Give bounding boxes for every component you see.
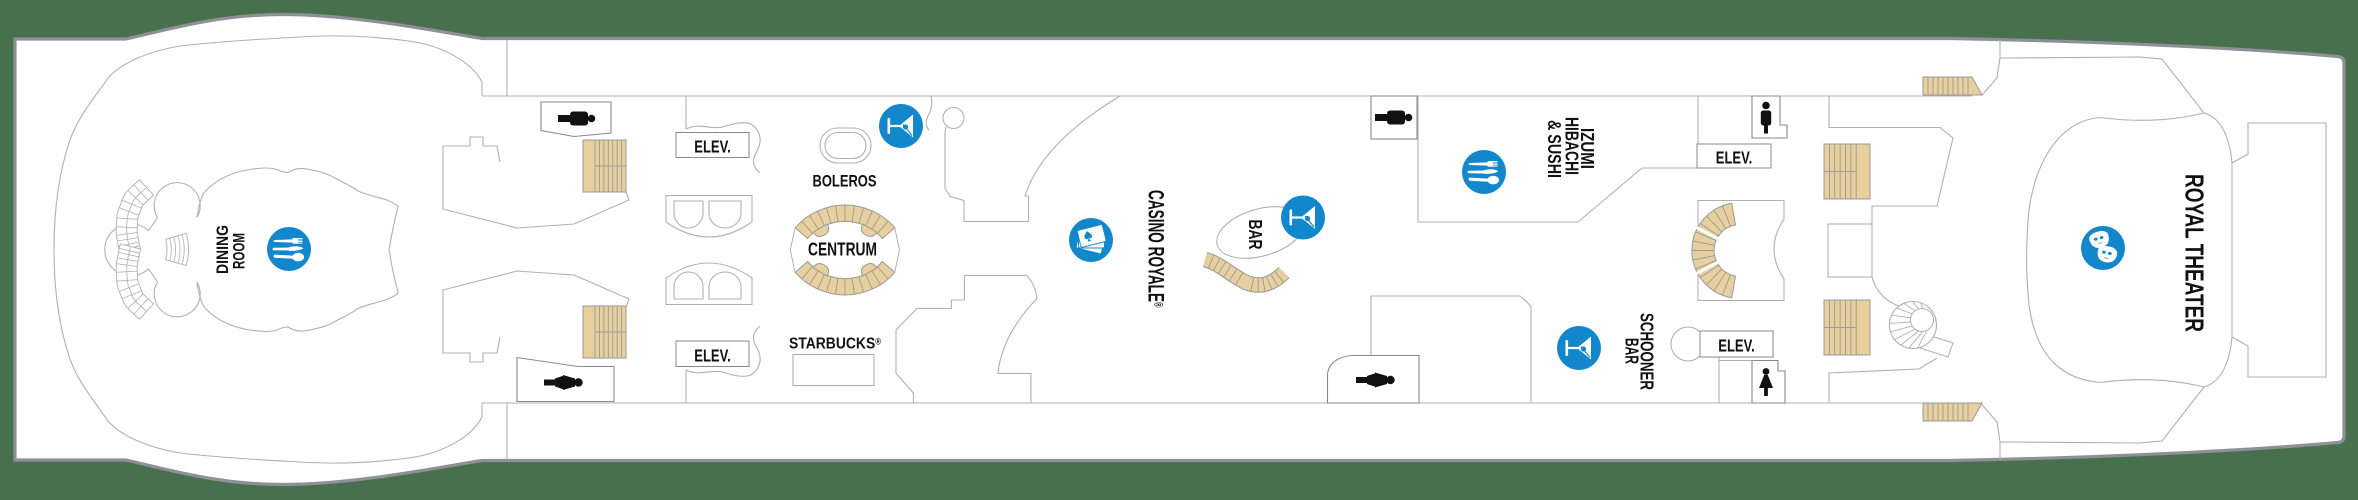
svg-text:BAR: BAR xyxy=(1622,338,1642,364)
svg-text:BAR: BAR xyxy=(1245,220,1265,250)
svg-text:ELEV.: ELEV. xyxy=(1716,148,1753,168)
svg-text:ELEV.: ELEV. xyxy=(694,345,731,365)
svg-text:BOLEROS: BOLEROS xyxy=(813,173,877,191)
svg-text:CASINO ROYALE®: CASINO ROYALE® xyxy=(1144,190,1169,308)
svg-text:ROOM: ROOM xyxy=(230,233,249,269)
svg-text:ELEV.: ELEV. xyxy=(694,137,731,157)
svg-text:ELEV.: ELEV. xyxy=(1718,336,1755,356)
svg-text:& SUSHI: & SUSHI xyxy=(1544,120,1565,178)
svg-text:CENTRUM: CENTRUM xyxy=(808,239,877,260)
svg-text:ROYAL THEATER: ROYAL THEATER xyxy=(2180,174,2210,332)
svg-text:STARBUCKS®: STARBUCKS® xyxy=(789,336,881,353)
